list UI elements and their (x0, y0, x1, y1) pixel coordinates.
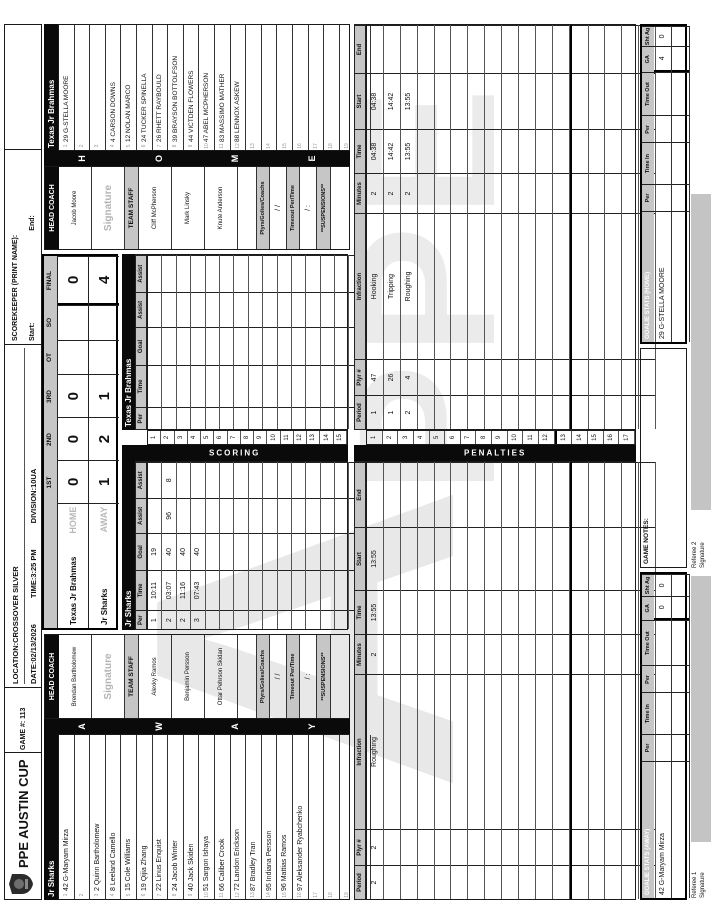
away-team-name: Jr Sharks (47, 861, 56, 897)
sc-goal (206, 327, 219, 365)
penalty-row-number: 7 (461, 431, 477, 444)
pen-infraction (418, 213, 434, 359)
gs-col-timein: Time In (642, 142, 654, 184)
roster-index: 11 (219, 891, 225, 899)
pen-plyr (502, 359, 518, 395)
away-scoring-row (335, 462, 349, 629)
gs-timein (672, 692, 689, 734)
roster-player: 29 G-STELLA MOORE (63, 76, 70, 142)
scoring-row-number: 5 (201, 431, 214, 444)
pen-infraction (536, 213, 552, 359)
pen-minutes: 2 (367, 634, 383, 674)
sc-per (292, 610, 305, 629)
away-roster-row: 12 72 Landon Erickson (231, 735, 247, 899)
gs-timeout (672, 620, 689, 666)
pen-minutes (589, 634, 605, 674)
pen-time (435, 590, 451, 634)
away-letter: A (77, 723, 87, 730)
roster-index: 16 (297, 891, 303, 899)
gs-col-timeout: Time Out (642, 72, 654, 116)
pen-plyr (519, 359, 535, 395)
pen-end (451, 25, 467, 73)
sc-col-goal: Goal (136, 533, 146, 570)
roster-index: 12 (235, 891, 241, 899)
pen-period (589, 395, 605, 429)
away-side-band: AWAY (44, 719, 350, 734)
sc-time (249, 365, 262, 408)
sc-time (278, 365, 291, 408)
goalie-away-row (672, 574, 690, 898)
sc-goal (191, 327, 204, 365)
roster-index: 11 (219, 142, 225, 150)
away-letter: W (154, 722, 164, 731)
sc-assist2 (177, 462, 190, 498)
goalie-stats-away-box: GOALIE STATS (AWAY) Per Time In Per Time… (640, 572, 687, 900)
sc-col-assist1: Assist (136, 292, 146, 328)
pen-start (622, 73, 638, 129)
roster-index: 8 (172, 142, 178, 150)
pen-infraction (519, 213, 535, 359)
sc-assist2 (249, 255, 262, 292)
pen-col-time: Time (355, 129, 365, 173)
home-penalty-row (485, 25, 502, 429)
col-2nd: 2ND (44, 418, 55, 461)
sc-assist1 (220, 292, 233, 328)
home-penalties-rows: 1 47 Hooking 2 04:38 04:38 1 26 Tripping… (366, 24, 636, 430)
away-scoring-row (220, 462, 234, 629)
home-side-band: HOME (44, 151, 350, 166)
home-penalty-row (435, 25, 452, 429)
away-penalty-row (519, 462, 536, 899)
sc-per (206, 610, 219, 629)
home-roster-row: 14 (262, 25, 278, 150)
roster-player: 2 Quinn Bartholomew (94, 824, 101, 891)
pen-minutes (384, 634, 400, 674)
pen-period (451, 865, 467, 899)
pen-infraction (384, 674, 400, 829)
roster-player: 8 Leeland Camello (110, 833, 117, 891)
scoring-row-number: 8 (241, 431, 254, 444)
gs-shtag: 0 (654, 26, 671, 46)
away-roster-row: 10 51 Sargon Ishaya (199, 735, 215, 899)
roster-player: 15 Cole Williams (125, 839, 132, 891)
pen-period (418, 865, 434, 899)
home-so (58, 305, 88, 340)
sc-assist1 (306, 292, 319, 328)
pen-period (435, 395, 451, 429)
scoring-label: SCORING (209, 449, 260, 458)
sc-goal (162, 327, 175, 365)
away-ot (89, 340, 119, 375)
pen-period (502, 395, 518, 429)
sc-goal (220, 327, 233, 365)
sc-assist1 (206, 292, 219, 328)
sc-goal (278, 533, 291, 570)
pen-time (589, 590, 605, 634)
gs-ga: 4 (654, 46, 671, 72)
gs-timeout (654, 620, 671, 666)
pen-minutes (536, 173, 552, 213)
pen-plyr (622, 829, 638, 865)
home-scoring-row (234, 255, 248, 429)
gs-per2 (672, 115, 689, 142)
pen-plyr (485, 829, 501, 865)
pen-infraction (572, 674, 588, 829)
penalty-row-number: 11 (523, 431, 539, 444)
home-penalty-row (589, 25, 606, 429)
sc-assist1 (206, 498, 219, 534)
away-scoring-team: Jr Sharks (124, 591, 133, 627)
away-penalty-row (451, 462, 468, 899)
sc-assist2 (148, 462, 161, 498)
gs-col-per: Per (642, 184, 654, 211)
away-roster-row: 16 97 Aleksander Ryabchenko (293, 735, 309, 899)
sc-assist1 (191, 498, 204, 534)
pen-end (367, 25, 383, 73)
home-penalty-row (502, 25, 519, 429)
pen-period (401, 865, 417, 899)
pen-infraction (435, 674, 451, 829)
sc-per (335, 407, 348, 429)
goalie-away-row: 42 G-Maryam Mirza 0 0 (654, 574, 672, 898)
pen-period (468, 865, 484, 899)
home-plyrs-value: / / (270, 167, 287, 249)
pen-start (605, 527, 621, 590)
pen-infraction (435, 213, 451, 359)
gs-col-per: Per (642, 734, 654, 761)
sc-assist2 (292, 255, 305, 292)
sc-goal (335, 327, 348, 365)
referee1-signature-label: Signature (699, 842, 707, 898)
home-scoring-row (177, 255, 191, 429)
home-coach-blank (331, 167, 349, 249)
sc-col-assist2: Assist (136, 462, 146, 498)
pen-end (502, 25, 518, 73)
goalie-home-row: 29 G-STELLA MOORE 4 0 (654, 26, 672, 342)
roster-index: 12 (235, 142, 241, 150)
roster-player: 72 Landon Erickson (234, 829, 241, 891)
pen-start (605, 73, 621, 129)
home-scoring-row (206, 255, 220, 429)
pen-end (384, 25, 400, 73)
sc-assist2 (249, 462, 262, 498)
pen-period (605, 865, 621, 899)
pen-plyr (418, 359, 434, 395)
home-roster-row: 8 39 BRAYSON BOTTOLFSON (168, 25, 184, 150)
away-scoring-row (321, 462, 335, 629)
pen-minutes: 2 (401, 173, 417, 213)
scoring-row-number: 14 (320, 431, 333, 444)
sc-time (206, 570, 219, 611)
pen-end (435, 25, 451, 73)
pen-time (435, 129, 451, 173)
pen-col-period: Period (355, 865, 365, 899)
roster-player: 96 Mattias Ramos (281, 835, 288, 891)
pen-minutes (435, 634, 451, 674)
sc-assist1 (220, 498, 233, 534)
gs-shtag: 0 (654, 574, 671, 596)
pen-period (468, 395, 484, 429)
away-staff-2: Benjamin Persson (172, 635, 205, 718)
pen-infraction: Hooking (367, 213, 383, 359)
sc-assist1 (306, 498, 319, 534)
pen-time: 14:42 (384, 129, 400, 173)
pen-period: 1 (384, 395, 400, 429)
sc-assist2: 8 (162, 462, 175, 498)
ppe-logo-icon (8, 872, 39, 896)
away-suspensions-band: **SUSPENSIONS** (317, 635, 331, 718)
sc-per (206, 407, 219, 429)
sc-time (162, 365, 175, 408)
home-roster-row: 12 88 LENNOX ASKEW (231, 25, 247, 150)
pen-time (502, 129, 518, 173)
pen-start (502, 73, 518, 129)
penalty-row-number: 10 (508, 431, 524, 444)
sc-goal (148, 327, 161, 365)
sc-assist1 (335, 498, 348, 534)
pen-time (553, 590, 569, 634)
away-timeout-value: / : (300, 635, 317, 718)
home-roster-row: 15 (277, 25, 293, 150)
roster-index: 16 (297, 142, 303, 150)
scoring-row-number: 15 (334, 431, 347, 444)
home-roster-row: 7 26 RHETT RAYBOULD (153, 25, 169, 150)
pen-minutes (435, 173, 451, 213)
pen-period (553, 865, 569, 899)
col-so: SO (44, 305, 55, 340)
pen-infraction (622, 213, 638, 359)
sc-col-goal: Goal (136, 327, 146, 365)
pen-end (502, 462, 518, 527)
pen-infraction: Roughing (367, 674, 383, 829)
pen-time (605, 590, 621, 634)
home-timeout-band: Timeout Per/Time (287, 167, 300, 249)
away-head-coach-band: HEAD COACH (45, 635, 59, 718)
goalie-home-band: GOALIE STATS (HOME) (642, 211, 654, 342)
home-coach-column: HEAD COACH Jacob Moore Signature TEAM ST… (44, 166, 350, 250)
sc-goal (249, 327, 262, 365)
pen-period (435, 865, 451, 899)
gs-col-shtag: Sht Ag (642, 574, 654, 596)
pen-time (468, 129, 484, 173)
sc-per (292, 407, 305, 429)
gs-name (672, 211, 689, 342)
time-value: TIME:3:25 PM (29, 549, 38, 598)
sc-per (220, 610, 233, 629)
gs-col-timeout: Time Out (642, 620, 654, 666)
roster-player: 66 Caliber Crook (219, 838, 226, 891)
away-penalty-row: 2 2 Roughing 2 13:55 13:55 (367, 462, 384, 899)
pen-end (468, 25, 484, 73)
home-penalty-row (536, 25, 553, 429)
roster-player: 24 Jacob Winter (172, 840, 179, 891)
roster-player: 12 NOLAN MARCO (125, 85, 132, 142)
roster-player: 19 Qijia Zhang (141, 845, 148, 891)
pen-minutes (622, 634, 638, 674)
penalty-row-number: 15 (588, 431, 604, 444)
away-penalty-row (468, 462, 485, 899)
roster-player: 51 Sargon Ishaya (203, 836, 210, 891)
away-coach-blank (331, 635, 349, 718)
away-team-staff-band: TEAM STAFF (125, 635, 139, 718)
home-head-coach-name: Jacob Moore (59, 167, 92, 249)
sc-assist1 (263, 498, 276, 534)
pen-infraction (553, 674, 569, 829)
gs-per2 (654, 665, 671, 692)
col-3rd: 3RD (44, 375, 55, 418)
away-penalties-rows: 2 2 Roughing 2 13:55 13:55 (366, 461, 636, 900)
pen-plyr (401, 829, 417, 865)
pen-col-infraction: Infraction (355, 213, 365, 359)
penalty-row-number: 3 (398, 431, 414, 444)
pen-period (502, 865, 518, 899)
pen-period: 1 (367, 395, 383, 429)
home-letter: E (307, 156, 317, 162)
gs-ga (672, 596, 689, 620)
pen-col-time: Time (355, 590, 365, 634)
roster-player: 4 CARSON DOWNS (110, 82, 117, 142)
pen-end (435, 462, 451, 527)
sc-goal (292, 533, 305, 570)
pen-period (485, 865, 501, 899)
pen-plyr (468, 359, 484, 395)
roster-index: 14 (266, 142, 272, 150)
sc-assist1 (292, 498, 305, 534)
pen-minutes (622, 173, 638, 213)
away-scoring-headers: Per Time Goal Assist Assist (135, 461, 147, 630)
home-letter: O (154, 155, 164, 162)
away-scoring-row: 2 03:07 40 96 8 (162, 462, 176, 629)
sc-per (234, 407, 247, 429)
roster-index: 1 (63, 142, 69, 150)
pen-col-start: Start (355, 73, 365, 129)
goals-col-headers: 1ST 2ND 3RD OT SO FINAL (44, 254, 55, 504)
sc-assist1 (249, 498, 262, 534)
penalties-row-numbers: 1234567891011121314151617 (366, 430, 636, 445)
sc-assist2 (263, 462, 276, 498)
penalty-row-number: 13 (555, 431, 573, 444)
pen-start (401, 527, 417, 590)
pen-period: 2 (367, 865, 383, 899)
pen-time (485, 590, 501, 634)
game-number-cell: GAME #: 113 (4, 687, 42, 753)
penalty-row-number: 17 (619, 431, 635, 444)
pen-time (519, 129, 535, 173)
sc-per (177, 407, 190, 429)
sc-assist1 (162, 292, 175, 328)
penalty-row-number: 4 (414, 431, 430, 444)
sc-per (306, 407, 319, 429)
home-roster-band: Texas Jr Brahmas (44, 24, 58, 151)
sc-col-time: Time (136, 365, 146, 408)
away-scoring-row: 2 11:16 40 (177, 462, 191, 629)
away-roster-row: 8 24 Jacob Winter (168, 735, 184, 899)
roster-player: 44 VICTDEN FLOWERS (188, 70, 195, 142)
pen-start (519, 73, 535, 129)
pen-plyr (622, 359, 638, 395)
pen-time (605, 129, 621, 173)
pen-infraction (605, 213, 621, 359)
sc-assist2 (206, 462, 219, 498)
pen-infraction (536, 674, 552, 829)
pen-end (589, 462, 605, 527)
sc-assist1 (148, 498, 161, 534)
home-scoring-row (162, 255, 176, 429)
roster-player: 83 MASSIMO MATHER (219, 73, 226, 142)
gs-col-ga: GA (642, 46, 654, 72)
pen-plyr: 2 (367, 829, 383, 865)
pen-minutes (536, 634, 552, 674)
scoring-row-number: 13 (307, 431, 320, 444)
pen-plyr (435, 359, 451, 395)
pen-time (384, 590, 400, 634)
roster-index: 6 (141, 142, 147, 150)
goalie-away-band: GOALIE STATS (AWAY) (642, 761, 654, 898)
sc-per (278, 610, 291, 629)
pen-start (418, 73, 434, 129)
pen-minutes (401, 634, 417, 674)
away-roster-row: 18 (324, 735, 340, 899)
roster-index: 1 (63, 891, 69, 899)
pen-infraction (589, 213, 605, 359)
away-2nd: 2 (89, 417, 119, 460)
sc-per (335, 610, 348, 629)
pen-minutes (605, 634, 621, 674)
away-scoring-row (234, 462, 248, 629)
away-scoring-row: 1 10:11 19 (148, 462, 162, 629)
pen-plyr (536, 359, 552, 395)
pen-period (536, 865, 552, 899)
sc-assist1 (292, 292, 305, 328)
goals-home-team: Texas Jr Brahmas (69, 557, 78, 625)
scoring-row-number: 1 (148, 431, 161, 444)
home-penalty-row: 1 47 Hooking 2 04:38 04:38 (367, 25, 384, 429)
pen-plyr (485, 359, 501, 395)
scoring-section-band: SCORING (122, 445, 348, 461)
location-value: LOCATION:CROSSOVER SILVER (7, 348, 25, 684)
pen-start (589, 527, 605, 590)
penalty-row-number: 8 (476, 431, 492, 444)
gs-per (672, 734, 689, 761)
referee2-signature-bar (691, 194, 711, 510)
roster-player: 88 LENNOX ASKEW (234, 81, 241, 142)
sc-time (220, 570, 233, 611)
sc-time: 10:11 (148, 570, 161, 611)
pen-start (622, 527, 638, 590)
sc-time (278, 570, 291, 611)
home-coach-signature: Signature (92, 167, 125, 249)
away-roster-row: 2 (75, 735, 91, 899)
roster-index: 8 (172, 891, 178, 899)
pen-plyr (519, 829, 535, 865)
roster-index: 9 (188, 891, 194, 899)
penalty-row-number: 2 (383, 431, 399, 444)
gs-col-ga: GA (642, 596, 654, 620)
pen-period (572, 865, 588, 899)
home-scoring-row (321, 255, 335, 429)
gs-shtag (672, 574, 689, 596)
gs-timeout (672, 72, 689, 116)
home-letter: H (77, 155, 87, 162)
pen-plyr (418, 829, 434, 865)
game-number: GAME #: 113 (20, 708, 27, 752)
pen-end (622, 462, 638, 527)
away-scoring-row (278, 462, 292, 629)
pen-start (485, 527, 501, 590)
away-roster-band: Jr Sharks (44, 734, 58, 900)
roster-player: 22 Linus Enquist (156, 839, 163, 891)
goals-row-home: Texas Jr Brahmas HOME 0 0 0 0 (57, 256, 88, 628)
